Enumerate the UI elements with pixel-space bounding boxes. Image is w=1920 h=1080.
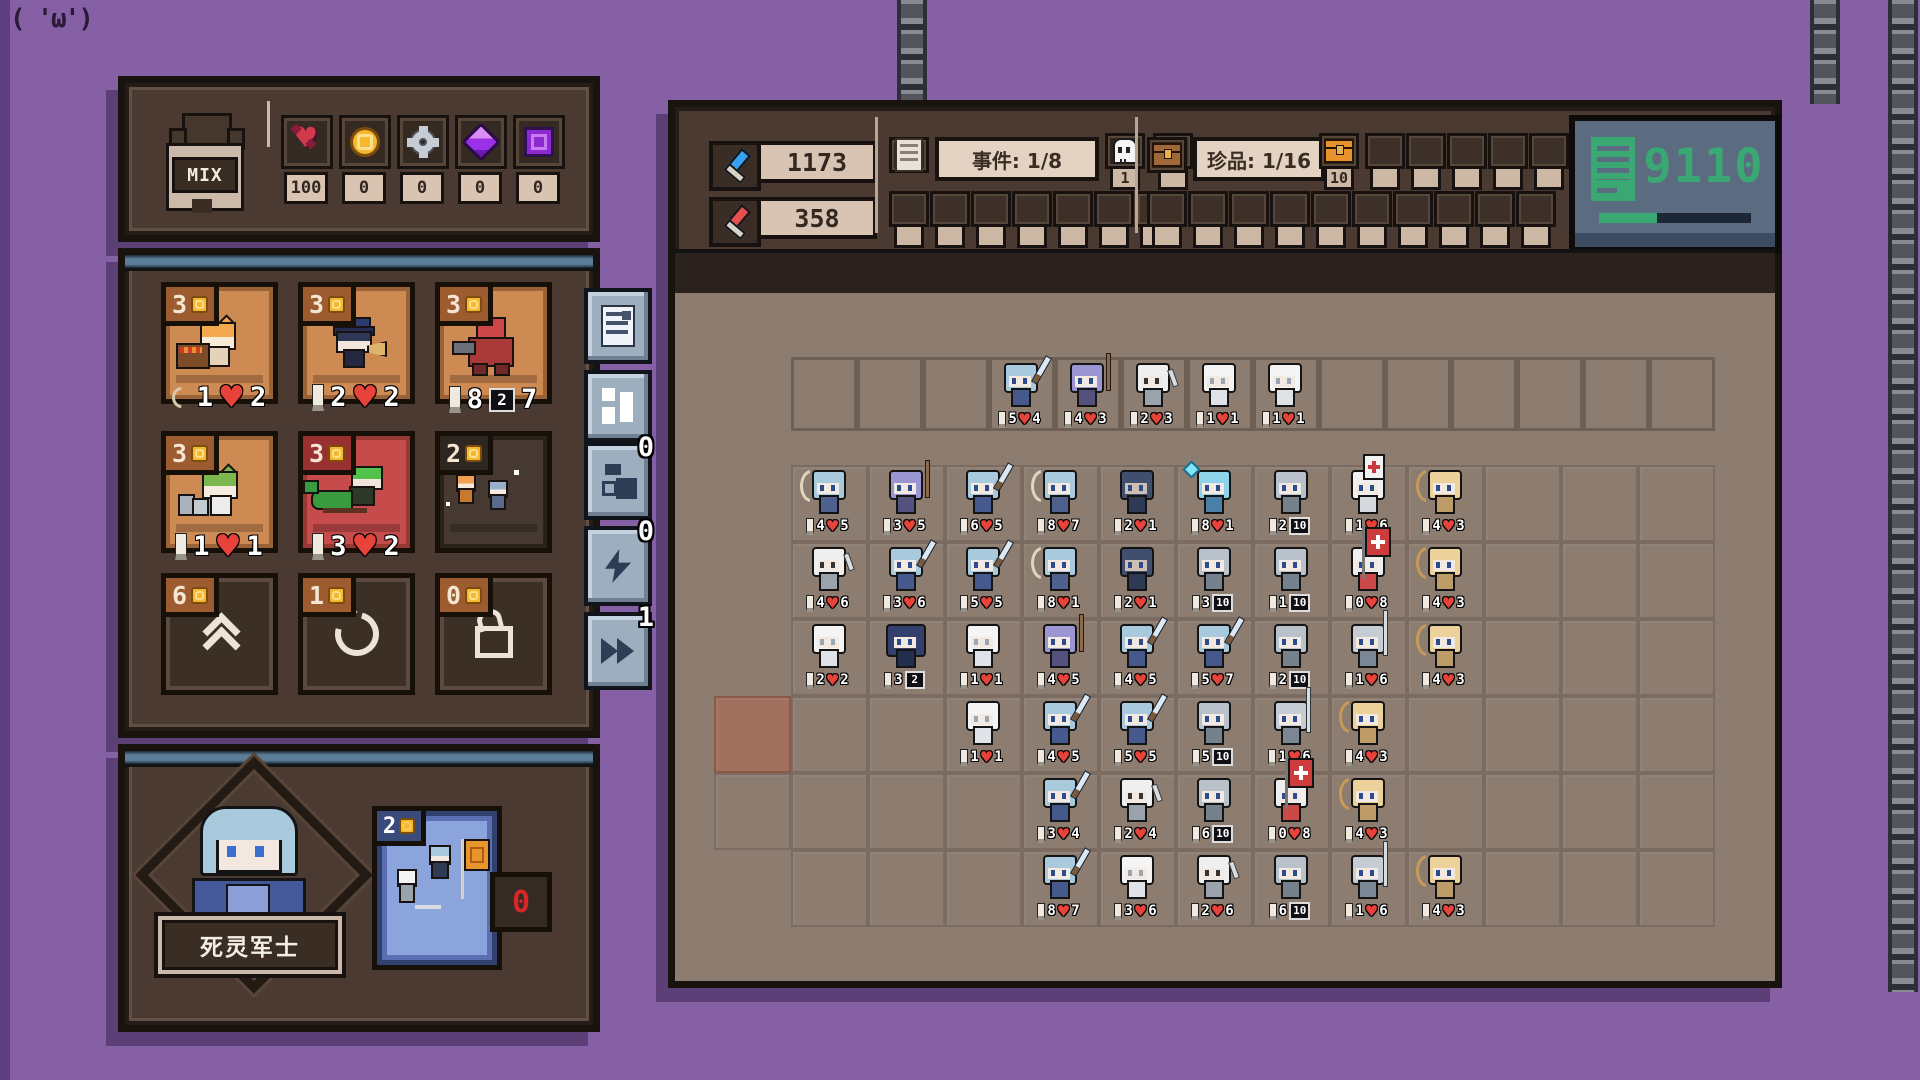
battle-panel: 1173 358 事件: 1/8 1 珍品: 1/16 [668,100,1782,988]
refresh-shop-button[interactable]: 1 [298,573,415,695]
grid-cell[interactable] [945,850,1022,927]
shield-badge: 10 [1212,594,1233,612]
unit-knight[interactable]: 110 [1256,547,1324,617]
card-cost: 3 [161,282,219,326]
currency-value: 100 [284,172,328,204]
empty-slot[interactable] [1365,133,1405,190]
unit-stats: 4♥3 [1410,901,1478,921]
unit-bigknight[interactable]: 32 [871,624,939,694]
heart-icon: ♥ [1134,825,1147,843]
battle-grid: 5♥44♥32♥31♥11♥14♥53♥56♥58♥72♥18♥12101♥64… [675,293,1775,981]
unit-stats: 1♥1 [948,670,1016,690]
blue-sprite [1037,701,1081,747]
shield-badge: 10 [1212,825,1233,843]
heart-icon: ♥ [980,517,993,535]
coin-icon [465,445,482,462]
divider [1135,117,1138,233]
candle-icon [883,595,891,612]
hero-skill-card[interactable]: 2 [372,806,502,970]
heart-icon: ♥ [826,517,839,535]
counter-progress [1599,213,1751,223]
empty-slot[interactable] [1352,191,1392,248]
grid-cell[interactable] [1561,696,1638,773]
unit-ghost[interactable]: 2♥2 [794,624,862,694]
skill-cost: 2 [372,806,426,846]
knight-sprite [1268,470,1312,516]
unit-blue[interactable]: 5♥4 [986,363,1054,433]
card-cost: 3 [161,431,219,475]
heart-icon: ♥ [1365,825,1378,843]
candle-icon [960,595,968,612]
grid-cell[interactable] [1638,465,1715,542]
grid-cell[interactable] [1484,773,1561,850]
shop-card-red-mech[interactable]: 3 827 [435,282,552,404]
grid-cell[interactable] [1484,465,1561,542]
candle-icon [1037,749,1045,766]
shield-badge: 2 [489,388,515,412]
candle-icon [806,672,814,689]
orange-chest-slot[interactable]: 10 [1319,133,1359,190]
heart-icon: ♥ [1084,410,1097,428]
heart-icon: ♥ [980,594,993,612]
unit-stats: 2♥1 [1102,516,1170,536]
heart-icon: ♥ [903,517,916,535]
enemy-cell[interactable] [1451,357,1517,431]
unit-tan[interactable]: 4♥3 [1333,701,1401,771]
card-stats: 3♥2 [299,529,414,564]
heart-icon: ♥ [1134,594,1147,612]
empty-slot[interactable] [1094,191,1134,248]
gear-icon [409,128,437,156]
candle-icon [1191,672,1199,689]
unit-stats: 5♥5 [948,593,1016,613]
candle-icon [1269,672,1277,689]
grid-cell[interactable] [1561,465,1638,542]
grid-icon [602,388,634,424]
unit-purple[interactable]: 3♥5 [871,470,939,540]
unit-tan[interactable]: 4♥3 [1410,547,1478,617]
candle-icon [883,518,891,535]
unit-stats: 610 [1256,901,1324,921]
grid-cell[interactable] [945,773,1022,850]
unit-stats: 4♥3 [1052,409,1120,429]
empty-slot[interactable] [1270,191,1310,248]
candle-icon [1345,672,1353,689]
unit-banner[interactable]: 0♥8 [1256,778,1324,848]
skel-sprite [1191,855,1235,901]
knight-sprite [1191,701,1235,747]
unit-stats: 2♥2 [794,670,862,690]
shop-card-police-girl[interactable]: 3 2♥2 [298,282,415,404]
currency-coin: 0 [339,115,389,204]
card-stats: 827 [436,384,551,415]
dragon-girl-sprite [303,466,410,526]
currency-gem: 0 [455,115,505,204]
divider [875,117,878,233]
skel-sprite [1130,363,1174,409]
heart-icon: ♥ [1365,671,1378,689]
empty-slot[interactable] [1475,191,1515,248]
unit-knight[interactable]: 310 [1179,547,1247,617]
purple-sprite [1037,624,1081,670]
empty-slot[interactable] [1529,133,1569,190]
medic-sprite [1345,470,1389,516]
grid-cell[interactable] [1638,619,1715,696]
unit-bluearcher[interactable]: 8♥1 [1025,547,1093,617]
card-stats: 2♥2 [299,380,414,415]
currency-value: 0 [342,172,386,204]
unit-blue[interactable]: 3♥4 [1025,778,1093,848]
card-cost: 3 [298,431,356,475]
candle-icon [1268,749,1276,766]
upgrade-chevrons-icon [202,617,238,651]
bluearcher-sprite [806,470,850,516]
unit-blue[interactable]: 4♥5 [1102,624,1170,694]
tan-sprite [1345,778,1389,824]
base-castle-icon: MIX [162,113,248,211]
candle-icon [1114,518,1122,535]
candle-icon [1192,595,1200,612]
purple-sprite [883,470,927,516]
demon-heart-icon [291,127,323,157]
empty-slot[interactable] [930,191,970,248]
enemy-cell[interactable] [1649,357,1715,431]
heart-icon: ♥ [1134,748,1147,766]
unit-stats: 110 [1256,593,1324,613]
blue-power-value: 1173 [761,141,877,183]
unit-tan[interactable]: 4♥3 [1410,470,1478,540]
heart-icon: ♥ [1150,410,1163,428]
heart-icon: ♥ [1442,671,1455,689]
upgrade-shop-button[interactable]: 6 [161,573,278,695]
chest-count: 10 [1324,169,1354,190]
spear-sprite [1345,855,1389,901]
heart-icon: ♥ [1057,902,1070,920]
ice-sprite [1191,470,1235,516]
event-doc-slot[interactable] [889,137,929,173]
hero-nameplate: 死灵军士 [158,916,342,974]
unit-knight[interactable]: 210 [1256,624,1324,694]
candle-icon [175,533,187,560]
game-screen: ( 'ω') MIX 1000000 3 1♥2 3 [0,0,1920,1080]
blue-sprite [998,363,1042,409]
grid-cell[interactable] [1638,542,1715,619]
candle-icon [1345,518,1353,535]
candle-icon [1196,411,1204,428]
empty-slot[interactable] [1147,191,1187,248]
candle-icon [1345,749,1353,766]
enemy-cell[interactable] [923,357,989,431]
unit-purple[interactable]: 4♥3 [1052,363,1120,433]
candle-icon [312,533,324,560]
unit-stats: 4♥5 [794,516,862,536]
candle-icon [1268,826,1276,843]
empty-slot[interactable] [1311,191,1351,248]
unit-blue[interactable]: 3♥6 [871,547,939,617]
skull-slot[interactable]: 1 [1105,133,1145,190]
shield-badge: 10 [1289,517,1310,535]
red-power-value: 358 [761,197,877,239]
side-button-lightning[interactable]: 0 [584,526,652,606]
chain [1810,0,1840,104]
unit-knight[interactable]: 610 [1179,778,1247,848]
currency-cube: 0 [513,115,563,204]
document-icon [601,305,635,347]
grid-cell[interactable] [1638,850,1715,927]
unit-stats: 4♥3 [1333,747,1401,767]
empty-slot[interactable] [1516,191,1556,248]
blue-sword-icon [718,149,752,183]
shop-card-duo-unit[interactable]: 2 [435,431,552,553]
unit-tan[interactable]: 4♥3 [1410,855,1478,925]
heart-icon: ♥ [218,380,245,415]
unit-ghost[interactable]: 1♥1 [948,701,1016,771]
counter-value: 9110 [1641,139,1767,194]
grid-cell[interactable] [1407,696,1484,773]
grid-cell[interactable] [1561,619,1638,696]
empty-slot[interactable] [1012,191,1052,248]
duo-unit-sprite [440,466,547,526]
unit-stats: 1♥1 [1250,409,1318,429]
lock-open-icon [475,626,513,658]
card-cost: 3 [298,282,356,326]
unit-blue[interactable]: 5♥5 [948,547,1016,617]
grid-cell[interactable] [1484,542,1561,619]
grid-cell[interactable] [714,773,791,850]
bow-icon [172,387,191,408]
divider-bar [125,255,593,271]
unit-knight[interactable]: 210 [1256,470,1324,540]
heart-icon: ♥ [1057,825,1070,843]
treasure-chest-slot[interactable] [1147,137,1187,173]
unit-tan[interactable]: 4♥3 [1410,624,1478,694]
unit-bluearcher[interactable]: 8♥7 [1025,470,1093,540]
spear-sprite [1268,701,1312,747]
currency-gear: 0 [397,115,447,204]
grid-cell[interactable] [1407,773,1484,850]
enemy-cell[interactable] [1319,357,1385,431]
chest-icon [1152,143,1182,167]
unit-stats: 8♥1 [1025,593,1093,613]
grid-cell[interactable] [868,696,945,773]
candle-icon [1191,903,1199,920]
green-cat-girl-sprite [166,466,273,526]
heart-icon: ♥ [903,594,916,612]
empty-slot[interactable] [971,191,1011,248]
unit-blue[interactable]: 5♥7 [1179,624,1247,694]
enemy-cell[interactable] [791,357,857,431]
unit-stats: 4♥3 [1410,670,1478,690]
unit-ice[interactable]: 8♥1 [1179,470,1247,540]
grid-cell[interactable] [1638,696,1715,773]
fast-forward-icon [601,638,635,664]
unit-blue[interactable]: 8♥7 [1025,855,1093,925]
heart-icon: ♥ [1018,410,1031,428]
heart-icon: ♥ [352,529,379,564]
grid-cell[interactable] [1484,619,1561,696]
enemy-cell[interactable] [1385,357,1451,431]
ghost-sprite [1262,363,1306,409]
unit-stats: 0♥8 [1333,593,1401,613]
currency-list: 1000000 [281,115,563,204]
unit-stats: 8♥7 [1025,516,1093,536]
round-counter-display: 9110 [1569,115,1781,253]
side-button-fast-forward[interactable]: 1 [584,612,652,690]
shop-panel: 3 1♥2 3 2♥2 3 [118,248,600,738]
coin-icon [191,445,208,462]
coin-icon [399,818,415,834]
heart-icon: ♥ [980,748,993,766]
currency-value: 0 [400,172,444,204]
candle-icon [884,672,892,689]
highlighted-cell[interactable] [714,696,791,773]
unit-knight[interactable]: 610 [1256,855,1324,925]
unit-hood[interactable]: 2♥1 [1102,470,1170,540]
coin-icon [328,587,345,604]
heart-icon: ♥ [215,529,242,564]
events-counter-pill: 事件: 1/8 [935,137,1099,181]
heart-icon: ♥ [1134,902,1147,920]
unit-purple[interactable]: 4♥5 [1025,624,1093,694]
card-stats: 1♥2 [162,380,277,415]
unit-stats: 4♥6 [794,593,862,613]
heart-icon: ♥ [1134,517,1147,535]
heart-icon: ♥ [826,671,839,689]
side-button-squares[interactable]: 0 [584,442,652,520]
grid-cell[interactable] [791,773,868,850]
shield-badge: 10 [1212,748,1233,766]
unit-ghost[interactable]: 1♥1 [1250,363,1318,433]
empty-slot[interactable] [1053,191,1093,248]
unit-ghost[interactable]: 1♥1 [948,624,1016,694]
enemy-cell[interactable] [1583,357,1649,431]
unit-hood[interactable]: 2♥1 [1102,547,1170,617]
coin-icon [328,445,345,462]
empty-slot[interactable] [1447,133,1487,190]
unit-ghost[interactable]: 1♥1 [1184,363,1252,433]
candle-icon [1345,595,1353,612]
grid-cell[interactable] [868,850,945,927]
heart-icon: ♥ [1134,671,1147,689]
unit-stats: 2♥3 [1118,409,1186,429]
heart-icon: ♥ [1057,594,1070,612]
ghost-sprite [1196,363,1240,409]
grid-cell[interactable] [868,773,945,850]
coin-icon [191,587,208,604]
grid-cell[interactable] [1484,696,1561,773]
candle-icon [1191,518,1199,535]
heart-icon: ♥ [826,594,839,612]
shop-card-dragon-girl[interactable]: 3 3♥2 [298,431,415,553]
empty-slot[interactable] [1229,191,1269,248]
unit-spear[interactable]: 1♥6 [1333,855,1401,925]
grid-cell[interactable] [1561,850,1638,927]
red-power-stat: 358 [709,197,877,247]
shield-badge: 10 [1289,902,1310,920]
unit-tan[interactable]: 4♥3 [1333,778,1401,848]
skull-icon [1113,138,1137,164]
side-button-document[interactable] [584,288,652,364]
knight-sprite [1268,547,1312,593]
banner-sprite [1268,778,1312,824]
unit-skel[interactable]: 2♥3 [1118,363,1186,433]
enemy-cell[interactable] [857,357,923,431]
grid-cell[interactable] [1638,773,1715,850]
grid-cell[interactable] [1484,850,1561,927]
empty-slot[interactable] [1488,133,1528,190]
heart-icon: ♥ [1211,517,1224,535]
red-mech-sprite [440,317,547,377]
heart-icon: ♥ [1442,594,1455,612]
lock-shop-button[interactable]: 0 [435,573,552,695]
candle-icon [1422,518,1430,535]
candle-icon [1345,903,1353,920]
button-cost: 6 [161,573,219,617]
grid-cell[interactable] [1561,773,1638,850]
unit-blue[interactable]: 4♥5 [1025,701,1093,771]
unit-knight[interactable]: 510 [1179,701,1247,771]
grid-cell[interactable] [1561,542,1638,619]
chain [897,0,927,104]
skel-sprite [1114,778,1158,824]
treasure-counter-pill: 珍品: 1/16 [1193,137,1325,181]
unit-blue[interactable]: 6♥5 [948,470,1016,540]
empty-slot[interactable] [1188,191,1228,248]
unit-blue[interactable]: 5♥5 [1102,701,1170,771]
spear-sprite [1345,624,1389,670]
unit-skel[interactable]: 2♥6 [1179,855,1247,925]
unit-stats: 4♥3 [1333,824,1401,844]
heart-icon: ♥ [1057,671,1070,689]
empty-slot[interactable] [1406,133,1446,190]
shop-card-orange-cat-shopkeeper[interactable]: 3 1♥2 [161,282,278,404]
grid-cell[interactable] [791,850,868,927]
police-girl-sprite [303,317,410,377]
heart-icon: ♥ [1365,902,1378,920]
grid-cell[interactable] [791,696,868,773]
unit-bluearcher[interactable]: 4♥5 [794,470,862,540]
candle-icon [1269,518,1277,535]
currency-value: 0 [458,172,502,204]
counter-progress-fill [1599,213,1657,223]
enemy-cell[interactable] [1517,357,1583,431]
tan-sprite [1422,470,1466,516]
candle-icon [1192,749,1200,766]
candle-icon [1114,672,1122,689]
unit-spear[interactable]: 1♥6 [1333,624,1401,694]
candle-icon [1422,672,1430,689]
empty-slot[interactable] [1393,191,1433,248]
unit-banner[interactable]: 0♥8 [1333,547,1401,617]
unit-skel[interactable]: 2♥4 [1102,778,1170,848]
heart-icon: ♥ [1211,902,1224,920]
card-cost: 2 [435,431,493,475]
coin-icon [465,587,482,604]
unit-ghost[interactable]: 3♥6 [1102,855,1170,925]
side-button-badge: 1 [638,602,654,633]
side-button-badge: 0 [638,516,654,547]
blue-sprite [1114,624,1158,670]
unit-skel[interactable]: 4♥6 [794,547,862,617]
chain [1888,0,1918,992]
unit-stats: 3♥6 [1102,901,1170,921]
empty-slot[interactable] [1434,191,1474,248]
heart-icon: ♥ [1288,825,1301,843]
empty-slot[interactable] [889,191,929,248]
candle-icon [1037,518,1045,535]
shop-card-green-cat-girl[interactable]: 3 1♥1 [161,431,278,553]
heart-icon: ♥ [1057,517,1070,535]
